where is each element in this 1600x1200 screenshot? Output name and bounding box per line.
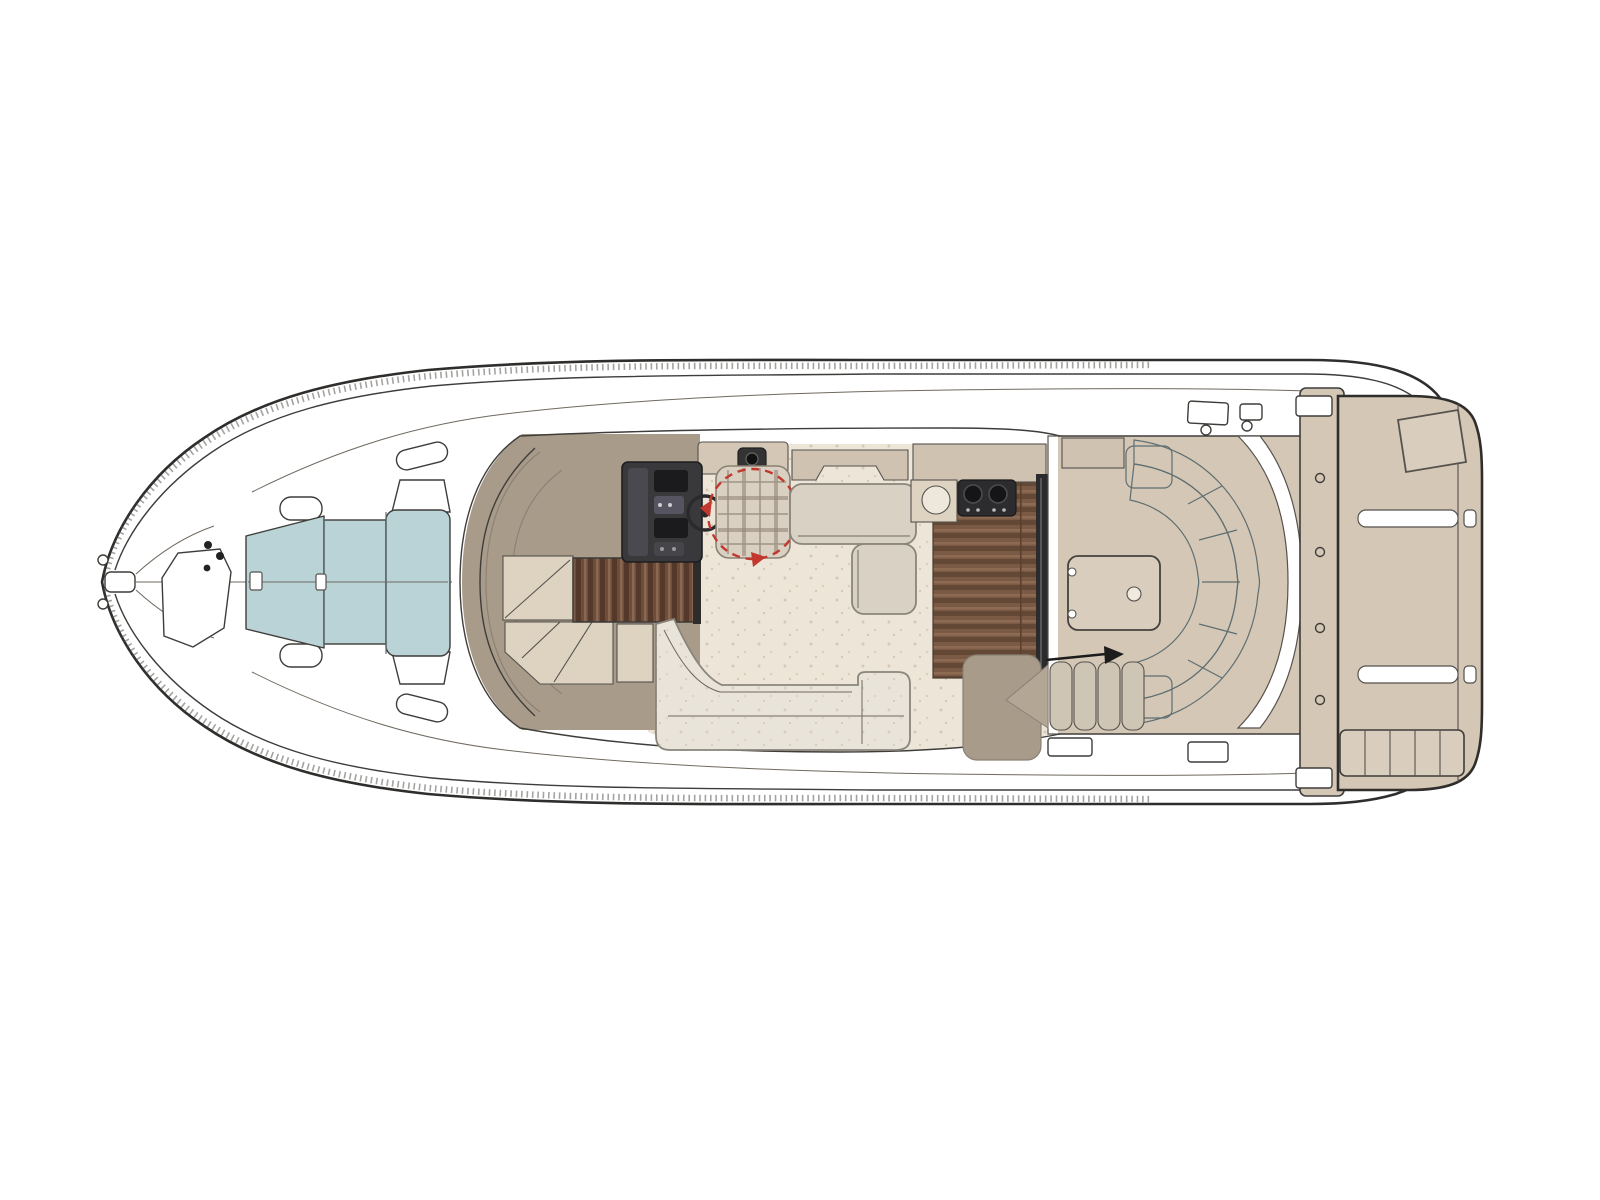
grab-rail-slot-bottom [1358, 666, 1458, 683]
helm-button-1 [658, 503, 662, 507]
step-1 [1050, 662, 1072, 730]
step-4 [1122, 662, 1144, 730]
gate-fitting-bottom-1 [1048, 738, 1092, 756]
stern [1296, 388, 1482, 796]
grab-rail-slot-top [1358, 510, 1458, 527]
helm-screen-2 [654, 518, 688, 538]
engine-hatch-hinge-2 [1068, 610, 1076, 618]
sunpad-corner-trim-top [280, 497, 322, 520]
cooktop-knob-3 [992, 508, 996, 512]
cooktop-knob-2 [976, 508, 980, 512]
cooktop-knob-4 [1002, 508, 1006, 512]
bow-rail-fitting-bottom [98, 599, 108, 609]
deck-fitting-dot-2 [216, 552, 224, 560]
galley-sink [922, 486, 950, 514]
bow-rail-fitting-top [98, 555, 108, 565]
dinette-bench-side [852, 544, 916, 614]
galley-counter [913, 444, 1046, 482]
cooktop-burner-2 [989, 485, 1007, 503]
step-3 [1098, 662, 1120, 730]
gate-fitting-top-2 [1240, 404, 1262, 420]
gate-fitting-top-1 [1187, 401, 1228, 425]
companionway-edge [693, 556, 701, 624]
step-2 [1074, 662, 1096, 730]
transom-gate-bottom [1296, 768, 1332, 788]
engine-hatch-latch [1127, 587, 1141, 601]
forward-panel-aft [617, 624, 653, 682]
helm-button-4 [672, 547, 676, 551]
helm-cabinet-dial [746, 453, 758, 465]
helm-button-2 [668, 503, 672, 507]
sunpad-chock-top [392, 480, 450, 512]
dinette-bench-top [790, 484, 916, 544]
sunpad-chock-bottom [392, 652, 450, 684]
gate-fitting-bottom-2 [1188, 742, 1228, 762]
companionway-steps [573, 558, 695, 622]
sunpad-hinge-1 [250, 572, 262, 590]
swim-ladder-housing [1340, 730, 1464, 776]
cockpit-wetbar [1062, 438, 1124, 468]
platform-seat [1398, 410, 1466, 472]
sunpad-aft-cushion [386, 510, 450, 656]
swim-ladder [1340, 730, 1464, 776]
sunpad-corner-trim-bottom [280, 644, 322, 667]
cooktop-burner-1 [964, 485, 982, 503]
anchor-roller [105, 572, 135, 592]
transom-gate-top [1296, 396, 1332, 416]
deck-fitting-dot-3 [204, 565, 211, 572]
helm-button-3 [660, 547, 664, 551]
grab-rail-slot-bottom-end [1464, 666, 1476, 683]
cooktop-knob-1 [966, 508, 970, 512]
grab-rail-slot-top-end [1464, 510, 1476, 527]
galley-refrigerator [1036, 474, 1048, 680]
deck-plan-canvas [0, 0, 1600, 1200]
sunpad-hinge-2 [316, 574, 326, 590]
engine-hatch [1068, 556, 1160, 630]
helm-switch-panel [654, 542, 684, 556]
helm-screen-1 [654, 470, 688, 492]
helm-console-left-panel [628, 468, 648, 556]
engine-hatch-hinge-1 [1068, 568, 1076, 576]
deck-fitting-dot-1 [204, 541, 212, 549]
